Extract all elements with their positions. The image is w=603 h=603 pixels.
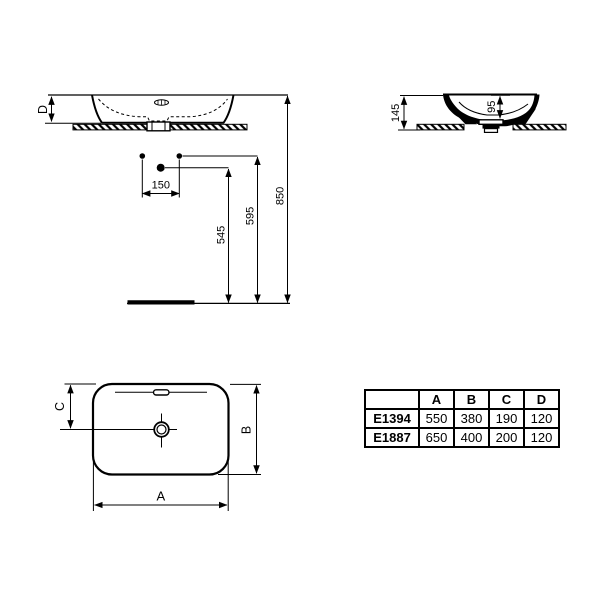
dim-150-label: 150 bbox=[152, 180, 170, 192]
value-cell: 650 bbox=[419, 428, 454, 447]
drain-fitting bbox=[147, 122, 170, 131]
dim-545-label: 545 bbox=[216, 226, 228, 244]
value-cell: 120 bbox=[524, 409, 559, 428]
front-elevation-view: D bbox=[36, 95, 288, 131]
dim-145-label: 145 bbox=[390, 104, 402, 122]
section-drain bbox=[479, 120, 503, 133]
dim-d-label: D bbox=[36, 105, 50, 114]
model-code: E1887 bbox=[365, 428, 419, 447]
dim-d: D bbox=[36, 97, 101, 123]
dim-595-label: 595 bbox=[245, 207, 257, 225]
dim-850-label: 850 bbox=[275, 187, 287, 205]
countertop-hatch-left bbox=[73, 124, 147, 130]
col-header-b: B bbox=[454, 390, 489, 409]
col-header-a: A bbox=[419, 390, 454, 409]
dim-545: 545 bbox=[216, 169, 229, 303]
dim-c: C bbox=[53, 384, 96, 428]
overflow-hole-icon bbox=[155, 100, 169, 105]
dim-150: 150 bbox=[142, 180, 179, 194]
dim-a: A bbox=[93, 458, 228, 511]
table-header-row: A B C D bbox=[365, 390, 559, 409]
dim-595: 595 bbox=[245, 157, 258, 303]
section-counter-left bbox=[417, 124, 464, 130]
dim-b-label: B bbox=[240, 426, 254, 434]
dim-c-label: C bbox=[53, 402, 67, 411]
section-view: 145 95 bbox=[390, 95, 566, 133]
value-cell: 380 bbox=[454, 409, 489, 428]
overflow-slot bbox=[154, 390, 170, 395]
value-cell: 550 bbox=[419, 409, 454, 428]
col-header-c: C bbox=[489, 390, 524, 409]
value-cell: 190 bbox=[489, 409, 524, 428]
dim-95-label: 95 bbox=[486, 101, 498, 113]
drain-symbol bbox=[60, 414, 177, 448]
plan-view: C B A bbox=[53, 384, 261, 511]
value-cell: 400 bbox=[454, 428, 489, 447]
dim-145: 145 bbox=[390, 97, 420, 130]
dim-850: 850 bbox=[275, 96, 288, 303]
table-row-e1887: E1887 650 400 200 120 bbox=[365, 428, 559, 447]
section-counter-right bbox=[513, 124, 566, 130]
inner-contour-dashed bbox=[99, 99, 228, 121]
dim-a-label: A bbox=[156, 489, 165, 504]
value-cell: 120 bbox=[524, 428, 559, 447]
drain-outlet-dot bbox=[157, 164, 165, 172]
table-corner-cell bbox=[365, 390, 419, 409]
dimension-table: A B C D E1394 550 380 190 120 E1887 650 … bbox=[364, 389, 560, 448]
countertop-hatch-right bbox=[170, 124, 247, 130]
basin-outline bbox=[92, 95, 234, 123]
model-code: E1394 bbox=[365, 409, 419, 428]
table-row-e1394: E1394 550 380 190 120 bbox=[365, 409, 559, 428]
technical-drawing: D 150 545 595 850 bbox=[0, 0, 603, 603]
fixing-dot-right bbox=[177, 153, 183, 159]
value-cell: 200 bbox=[489, 428, 524, 447]
dim-b: B bbox=[218, 384, 261, 474]
fixing-dot-left bbox=[140, 153, 146, 159]
col-header-d: D bbox=[524, 390, 559, 409]
